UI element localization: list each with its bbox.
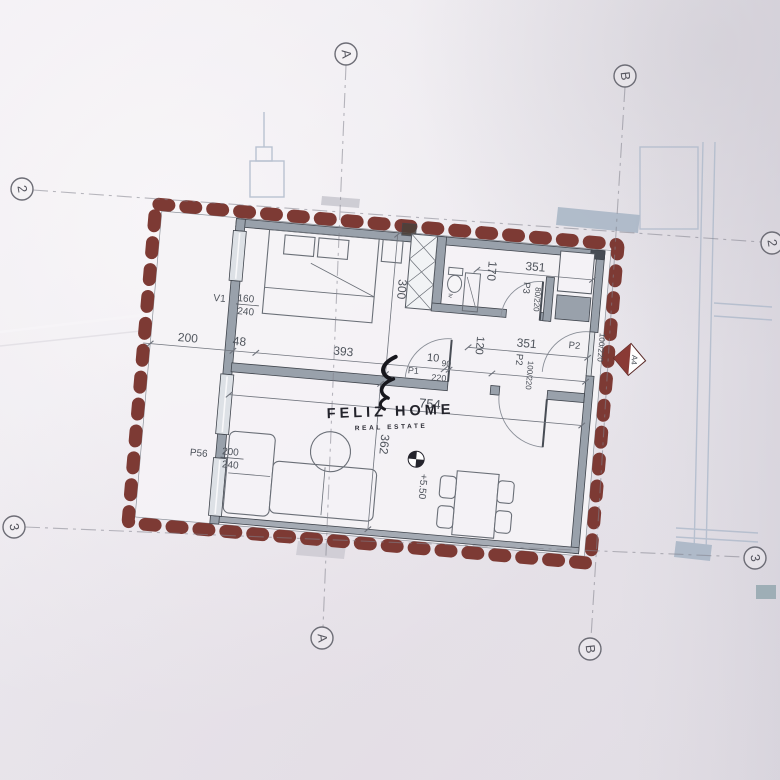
dim-hall-depth: 120: [473, 336, 487, 355]
dim-door-offset: 10: [427, 352, 440, 365]
window-v1-id: V1: [213, 293, 227, 305]
photo-corner-chip: [756, 585, 776, 599]
chair-left-bottom: [436, 505, 454, 528]
dim-living-depth: 362: [376, 434, 392, 455]
level-value: +5.50: [416, 473, 429, 500]
toilet-tank: [448, 267, 463, 275]
label-b-top: B: [618, 71, 634, 81]
dim-hall-upper: 351: [525, 259, 546, 275]
dim-bedroom-depth: 300: [394, 279, 410, 300]
label-b-bottom: B: [583, 644, 599, 654]
shaft-block: [555, 295, 591, 322]
window-p56-width: 200: [222, 446, 240, 458]
chair-left-top: [439, 475, 457, 498]
door-p1-id: P1: [407, 365, 419, 376]
window-v1-height: 240: [237, 306, 255, 318]
chair-right-bottom: [494, 510, 512, 533]
floor-plan: +5.50 200 48 393 10 90 P1 220 120 351 35…: [128, 202, 656, 567]
wall-left-1: [235, 219, 245, 232]
dim-hall-lower: 351: [516, 336, 537, 352]
dim-door-width: 90: [441, 358, 452, 369]
dim-bedroom-width: 393: [333, 344, 354, 360]
entry-closet: [557, 251, 594, 294]
dim-bath-width: 170: [484, 261, 500, 282]
door-p2-id: P2: [513, 353, 525, 366]
door-p1-height: 220: [431, 372, 447, 383]
dim-terrace: 200: [177, 330, 198, 346]
dining-table: [452, 471, 499, 538]
door-p2-entry-id: P2: [568, 340, 581, 352]
wall-left-4: [210, 515, 220, 524]
window-v1-width: 160: [237, 293, 255, 305]
wall-interior-mid: [490, 385, 500, 395]
sofa-chaise: [223, 431, 276, 517]
window-p56-height: 240: [221, 459, 239, 471]
dim-wall-offset: 48: [232, 334, 247, 349]
washbasin-label: lv: [446, 293, 452, 298]
window-p56-id: P56: [189, 447, 208, 460]
floor-plan-canvas: +5.50 200 48 393 10 90 P1 220 120 351 35…: [0, 0, 780, 780]
chair-right-top: [497, 480, 515, 503]
floor-plan-photo: +5.50 200 48 393 10 90 P1 220 120 351 35…: [0, 0, 780, 780]
door-p3-id: P3: [520, 282, 532, 295]
section-marker-label: A4: [629, 355, 639, 366]
